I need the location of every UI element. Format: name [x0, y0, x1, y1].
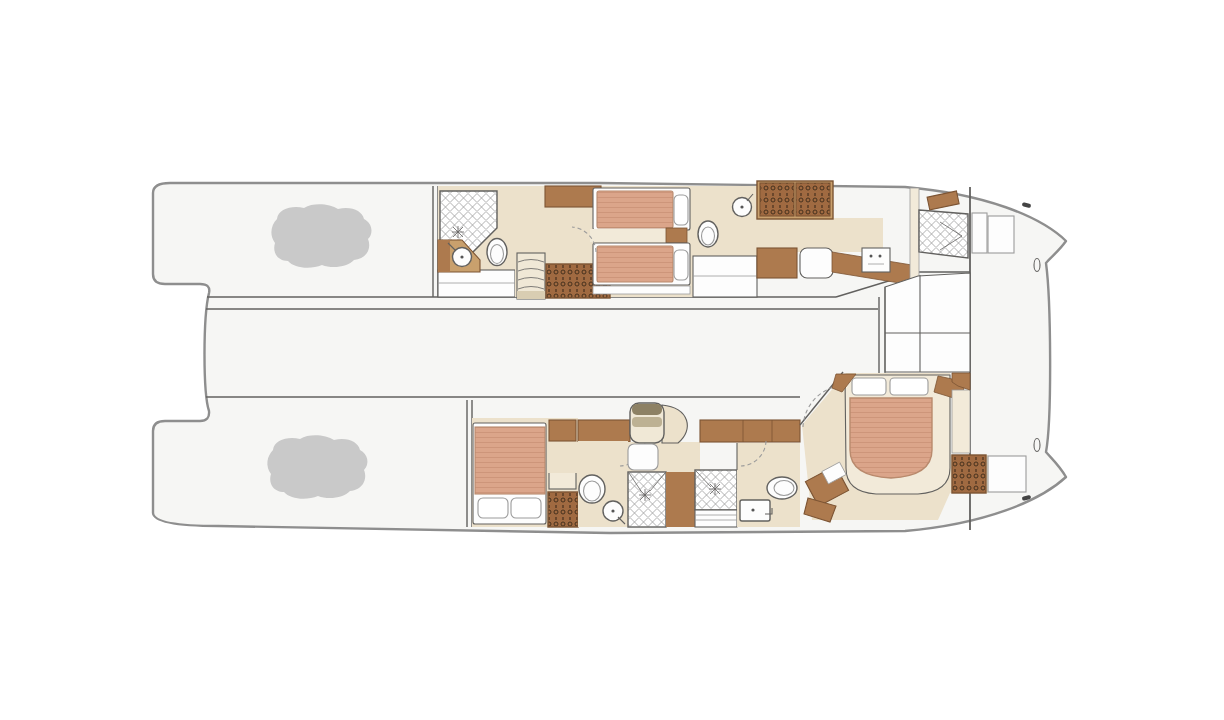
single-bed-1 [593, 188, 690, 230]
toilet [698, 221, 718, 247]
toilet [579, 475, 605, 503]
sink-drain-dot [460, 255, 463, 258]
wardrobe-owner [952, 455, 986, 493]
anchor-locker-2 [988, 216, 1014, 253]
toilet [487, 239, 507, 266]
vanity-counter-dark [438, 240, 450, 272]
appliance-body [862, 248, 890, 272]
second-shower-room [666, 470, 737, 527]
starboard-tender-outline [267, 435, 367, 498]
floor-plan-svg [0, 0, 1224, 720]
closet-block [885, 273, 970, 372]
stair-shade [517, 291, 545, 299]
stair-drum-top [632, 404, 662, 415]
stair-landing [628, 444, 658, 470]
nightstand-cabinet [666, 228, 687, 243]
port-guest-bathroom-aft [438, 186, 515, 297]
port-guest-bathroom-forward [693, 186, 757, 297]
hanging-locker-2 [796, 183, 830, 216]
dresser [757, 248, 797, 278]
pillow-1 [852, 378, 886, 395]
pillow-2 [890, 378, 928, 395]
sink-drain-dot [611, 509, 614, 512]
appliance [862, 248, 890, 272]
cabinet [549, 420, 576, 441]
floor-strip [666, 472, 695, 527]
crew-berth [919, 210, 968, 258]
shower-steps [695, 510, 737, 527]
bathroom-cabinets [693, 256, 757, 297]
bathroom-cabinets [438, 270, 515, 297]
appliance-knob-1 [870, 255, 873, 258]
nightstand [590, 229, 666, 242]
anchor-locker-1 [972, 213, 987, 253]
wardrobe-starboard [548, 492, 578, 527]
pillow-2 [511, 498, 541, 518]
shower-drain-icon [452, 226, 464, 238]
hanging-locker-1 [760, 183, 794, 216]
mattress [475, 427, 545, 494]
pillow-1 [478, 498, 508, 518]
footboard [593, 286, 690, 294]
forward-shelf [952, 390, 970, 453]
corridor-floor [757, 218, 883, 252]
sink-drain-dot [740, 205, 743, 208]
pillow [674, 195, 688, 225]
double-bed [473, 423, 546, 524]
appliance-knob-2 [879, 255, 882, 258]
port-tender-outline [271, 204, 371, 267]
seat [800, 248, 833, 278]
forward-locker [988, 456, 1026, 492]
floor-plan-canvas [0, 0, 1224, 720]
mattress [597, 246, 673, 282]
mattress [597, 191, 673, 228]
single-bed-2 [593, 243, 690, 285]
sink-drain-dot [751, 508, 754, 511]
stair-drum-mid [632, 417, 662, 427]
pillow [674, 250, 688, 280]
mattress [850, 398, 932, 478]
cabinet-row [700, 420, 800, 442]
stairs-port [517, 253, 545, 299]
corridor-cabinet-row [578, 420, 630, 442]
deck-fitting-top [1022, 202, 1032, 208]
island-double-bed [832, 374, 966, 494]
sink-basin [740, 500, 770, 521]
